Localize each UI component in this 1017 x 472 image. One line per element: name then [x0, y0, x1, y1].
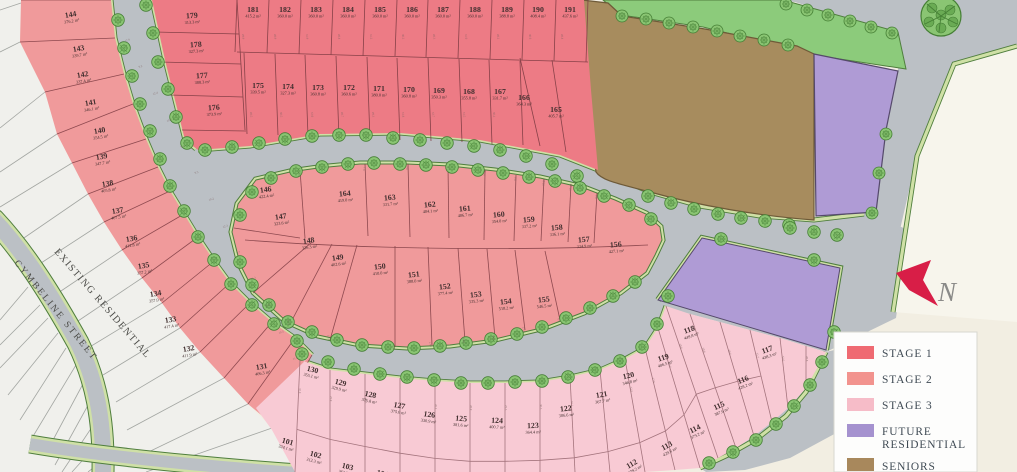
svg-text:408.4 m²: 408.4 m²: [530, 14, 546, 19]
svg-text:388.8 m²: 388.8 m²: [499, 14, 515, 19]
svg-text:437.6 m²: 437.6 m²: [562, 14, 578, 19]
svg-text:28.4: 28.4: [337, 34, 341, 40]
svg-text:339.5 m²: 339.5 m²: [250, 90, 266, 95]
svg-text:350.3 m²: 350.3 m²: [431, 95, 447, 100]
svg-text:355.8 m²: 355.8 m²: [461, 96, 477, 101]
svg-text:360.0 m²: 360.0 m²: [435, 14, 451, 19]
svg-text:364.4 m²: 364.4 m²: [525, 429, 541, 435]
svg-text:30.4: 30.4: [492, 112, 496, 118]
svg-text:31.2: 31.2: [369, 34, 373, 40]
svg-text:380.0 m²: 380.0 m²: [371, 93, 387, 98]
svg-text:32.8: 32.8: [298, 388, 302, 394]
svg-text:331.7 m²: 331.7 m²: [492, 96, 508, 101]
svg-text:28.3: 28.3: [432, 34, 436, 40]
svg-text:RESIDENTIAL: RESIDENTIAL: [882, 439, 966, 451]
svg-text:360.0 m²: 360.0 m²: [372, 14, 388, 19]
svg-text:25.3: 25.3: [504, 405, 508, 411]
svg-text:33.0: 33.0: [310, 112, 314, 118]
svg-text:28.2: 28.2: [496, 34, 500, 40]
svg-text:31.1: 31.1: [570, 401, 574, 407]
svg-text:STAGE 1: STAGE 1: [882, 348, 933, 360]
svg-text:28.4: 28.4: [560, 34, 564, 40]
svg-text:FUTURE: FUTURE: [882, 426, 932, 438]
svg-text:31.9: 31.9: [305, 34, 309, 40]
svg-text:360.8 m²: 360.8 m²: [401, 94, 417, 99]
svg-text:360.0 m²: 360.0 m²: [308, 14, 324, 19]
svg-text:364.3 m²: 364.3 m²: [516, 102, 532, 107]
svg-text:28.5: 28.5: [249, 112, 253, 118]
svg-text:28.3: 28.3: [364, 398, 368, 404]
svg-text:360.6 m²: 360.6 m²: [341, 92, 357, 97]
svg-text:26.2: 26.2: [434, 404, 438, 410]
svg-text:30.6: 30.6: [528, 34, 532, 40]
svg-text:29.9: 29.9: [241, 34, 245, 40]
svg-text:360.0 m²: 360.0 m²: [277, 14, 293, 19]
svg-text:400.7 m²: 400.7 m²: [489, 424, 505, 430]
svg-text:SENIORS: SENIORS: [882, 461, 936, 472]
svg-text:STAGE 2: STAGE 2: [882, 374, 933, 386]
svg-text:STAGE 3: STAGE 3: [882, 400, 933, 412]
svg-text:28.7: 28.7: [340, 112, 344, 118]
svg-text:28.8: 28.8: [805, 356, 809, 362]
svg-text:30.5: 30.5: [279, 112, 283, 118]
svg-text:31.0: 31.0: [464, 34, 468, 40]
svg-text:30.2: 30.2: [401, 34, 405, 40]
svg-text:31.8: 31.8: [401, 112, 405, 118]
svg-text:31.5: 31.5: [462, 112, 466, 118]
svg-text:31.1: 31.1: [399, 402, 403, 408]
svg-text:360.0 m²: 360.0 m²: [340, 14, 356, 19]
svg-text:28.9: 28.9: [469, 405, 473, 411]
svg-text:29.3: 29.3: [371, 112, 375, 118]
svg-text:360.0 m²: 360.0 m²: [467, 14, 483, 19]
svg-text:327.3 m²: 327.3 m²: [280, 91, 296, 96]
svg-text:N: N: [937, 277, 958, 307]
svg-text:33.7: 33.7: [431, 112, 435, 118]
svg-text:30.3: 30.3: [539, 404, 543, 410]
svg-text:360.8 m²: 360.8 m²: [310, 92, 326, 97]
svg-text:32.6: 32.6: [781, 356, 786, 362]
svg-text:415.2 m²: 415.2 m²: [245, 14, 261, 19]
svg-text:29.6: 29.6: [601, 396, 606, 402]
svg-text:360.0 m²: 360.0 m²: [404, 14, 420, 19]
svg-text:25.9: 25.9: [329, 396, 333, 402]
svg-text:28.9: 28.9: [273, 34, 277, 40]
svg-text:405.7 m²: 405.7 m²: [548, 114, 564, 119]
